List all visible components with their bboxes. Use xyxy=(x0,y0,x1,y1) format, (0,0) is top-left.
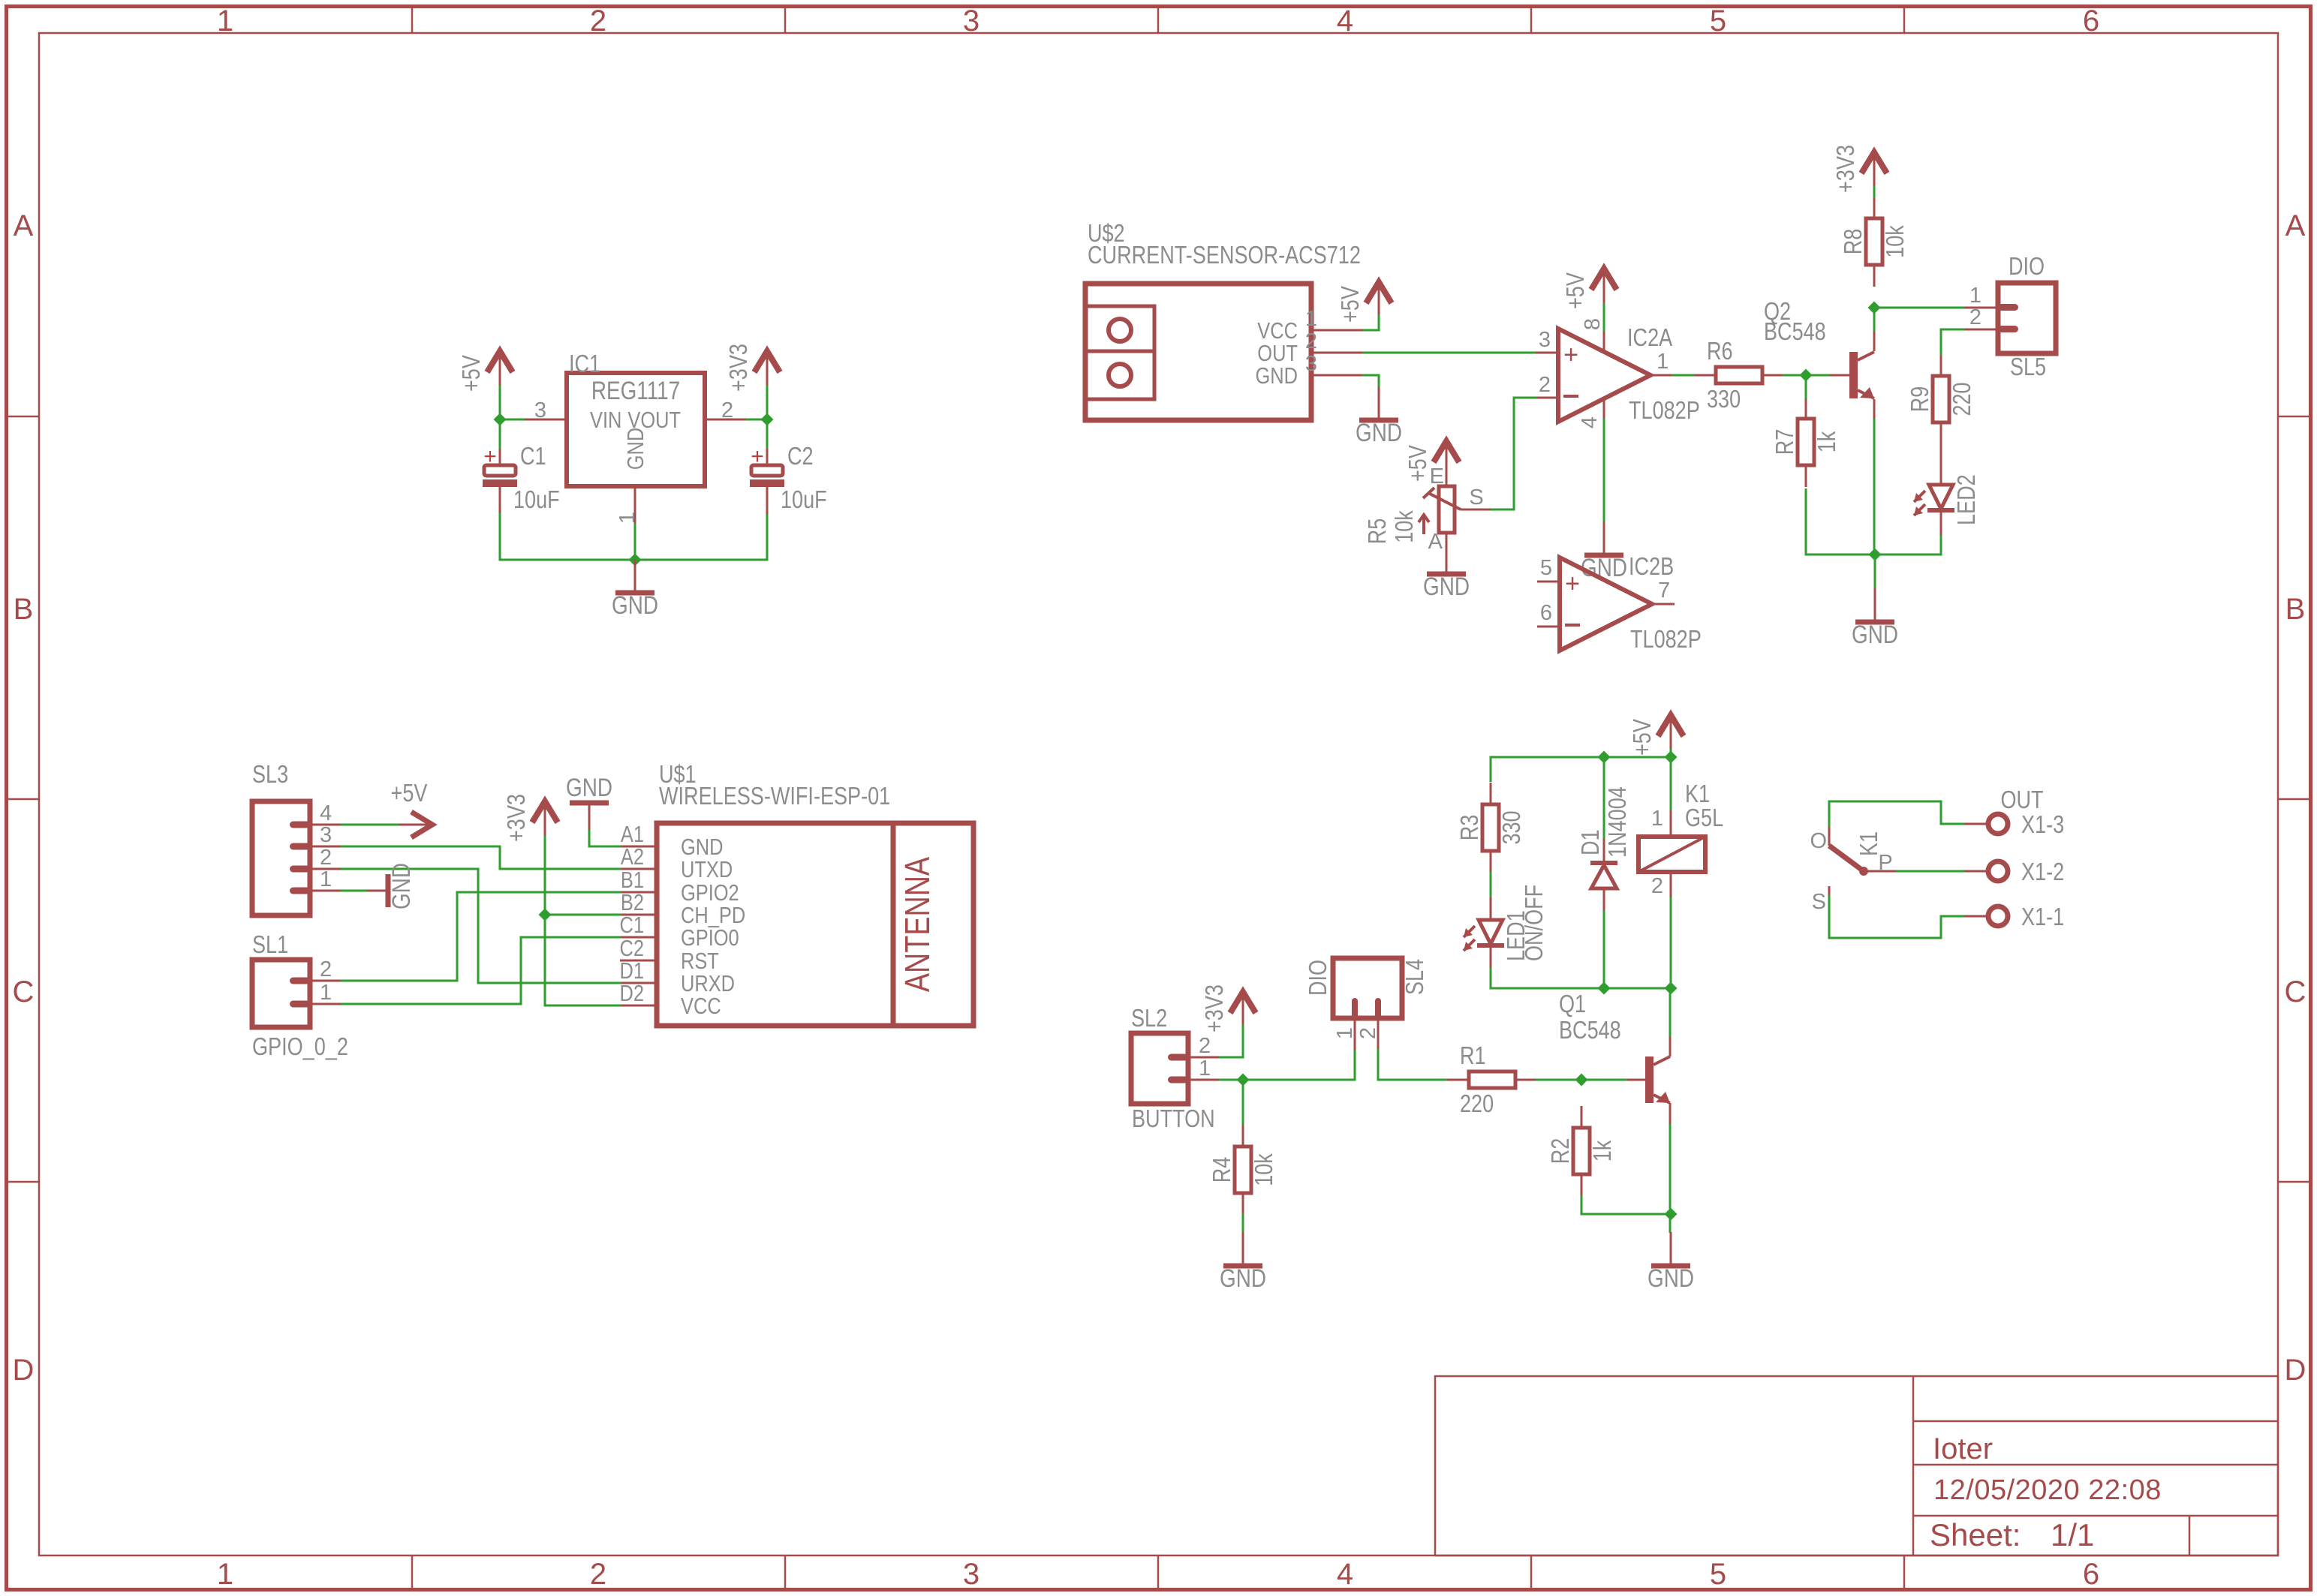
svg-text:S: S xyxy=(1812,890,1826,914)
svg-text:2: 2 xyxy=(590,5,606,38)
svg-text:BC548: BC548 xyxy=(1559,1016,1621,1044)
svg-text:1: 1 xyxy=(1199,1056,1211,1081)
svg-text:7: 7 xyxy=(1658,579,1670,603)
svg-text:+5V: +5V xyxy=(1404,445,1431,482)
svg-text:2: 2 xyxy=(721,398,733,422)
svg-text:R8: R8 xyxy=(1839,229,1867,255)
svg-text:GND: GND xyxy=(1423,573,1470,601)
svg-text:GND: GND xyxy=(1852,621,1898,649)
svg-text:3: 3 xyxy=(963,5,979,38)
svg-text:10uF: 10uF xyxy=(513,485,560,513)
svg-text:5: 5 xyxy=(1710,1558,1726,1591)
svg-text:WIRELESS-WIFI-ESP-01: WIRELESS-WIFI-ESP-01 xyxy=(659,782,890,810)
svg-text:1: 1 xyxy=(320,981,332,1005)
svg-text:R5: R5 xyxy=(1363,518,1391,545)
svg-text:D: D xyxy=(13,1354,35,1387)
svg-text:DIO: DIO xyxy=(1304,960,1332,996)
svg-text:SL1: SL1 xyxy=(252,930,288,958)
svg-text:X1-2: X1-2 xyxy=(2021,858,2064,885)
svg-text:1/1: 1/1 xyxy=(2051,1517,2094,1552)
svg-text:3: 3 xyxy=(320,823,332,847)
svg-text:3: 3 xyxy=(534,398,546,422)
svg-text:2: 2 xyxy=(320,846,332,870)
svg-text:GND: GND xyxy=(1220,1264,1266,1293)
svg-text:R3: R3 xyxy=(1455,815,1483,841)
svg-text:B: B xyxy=(2285,593,2306,626)
svg-text:1: 1 xyxy=(1333,1027,1357,1039)
svg-text:6: 6 xyxy=(1540,601,1552,625)
svg-text:1k: 1k xyxy=(1588,1140,1616,1162)
svg-text:R6: R6 xyxy=(1707,337,1733,365)
svg-text:GND: GND xyxy=(387,863,416,909)
svg-text:2: 2 xyxy=(1356,1027,1380,1039)
svg-text:6: 6 xyxy=(2083,1558,2099,1591)
svg-text:GPIO_0_2: GPIO_0_2 xyxy=(252,1032,348,1060)
svg-text:1: 1 xyxy=(1657,350,1669,374)
svg-text:+3V3: +3V3 xyxy=(1200,984,1228,1032)
svg-text:IC2B: IC2B xyxy=(1629,552,1674,580)
svg-text:+3V3: +3V3 xyxy=(724,344,752,392)
svg-text:5: 5 xyxy=(1710,5,1726,38)
svg-text:X1-3: X1-3 xyxy=(2021,810,2064,838)
svg-text:1: 1 xyxy=(217,1558,233,1591)
svg-text:D1: D1 xyxy=(1576,829,1604,855)
svg-text:GND: GND xyxy=(1256,362,1298,389)
svg-text:BUTTON: BUTTON xyxy=(1132,1105,1215,1132)
svg-text:UTXD: UTXD xyxy=(681,856,733,882)
svg-text:X1-1: X1-1 xyxy=(2021,903,2064,930)
svg-text:S: S xyxy=(1469,485,1483,509)
svg-text:B: B xyxy=(14,593,34,626)
svg-text:+: + xyxy=(1565,570,1580,598)
svg-text:DIO: DIO xyxy=(2009,252,2045,280)
svg-text:6: 6 xyxy=(2083,5,2099,38)
svg-text:D: D xyxy=(2285,1354,2306,1387)
svg-text:3: 3 xyxy=(1305,352,1317,376)
svg-text:1k: 1k xyxy=(1813,431,1840,452)
svg-text:R1: R1 xyxy=(1460,1041,1486,1069)
svg-text:+: + xyxy=(1563,341,1578,369)
svg-text:TL082P: TL082P xyxy=(1629,396,1700,424)
svg-text:O: O xyxy=(1810,829,1827,853)
svg-text:1: 1 xyxy=(1651,807,1663,831)
svg-text:8: 8 xyxy=(1581,318,1605,330)
svg-text:2: 2 xyxy=(1651,874,1663,898)
svg-text:LED2: LED2 xyxy=(1952,474,1980,525)
svg-text:Q1: Q1 xyxy=(1559,990,1586,1017)
svg-text:D2: D2 xyxy=(620,980,645,1006)
svg-text:A: A xyxy=(2285,209,2306,242)
svg-text:C2: C2 xyxy=(787,442,814,470)
svg-text:GND: GND xyxy=(1647,1264,1694,1293)
svg-text:+5V: +5V xyxy=(1561,272,1589,309)
svg-text:GND: GND xyxy=(1356,419,1402,447)
svg-text:C1: C1 xyxy=(620,912,645,938)
svg-text:GND: GND xyxy=(612,591,658,620)
svg-text:P: P xyxy=(1878,851,1892,875)
svg-text:IC1: IC1 xyxy=(569,350,600,377)
svg-text:OUT: OUT xyxy=(2000,786,2043,813)
svg-text:SL2: SL2 xyxy=(1131,1004,1167,1032)
svg-text:ON/OFF: ON/OFF xyxy=(1520,885,1548,961)
svg-text:10k: 10k xyxy=(1390,510,1418,543)
svg-text:1: 1 xyxy=(1969,284,1981,308)
svg-text:1: 1 xyxy=(217,5,233,38)
svg-text:CURRENT-SENSOR-ACS712: CURRENT-SENSOR-ACS712 xyxy=(1088,241,1361,269)
svg-text:+5V: +5V xyxy=(457,355,485,392)
svg-text:Ioter: Ioter xyxy=(1933,1432,1993,1465)
svg-text:G5L: G5L xyxy=(1685,804,1723,831)
svg-text:4: 4 xyxy=(1337,1558,1353,1591)
svg-text:R2: R2 xyxy=(1546,1138,1574,1165)
svg-text:VCC: VCC xyxy=(681,993,721,1019)
svg-text:1N4004: 1N4004 xyxy=(1603,786,1631,858)
svg-text:GND: GND xyxy=(566,774,612,802)
svg-text:4: 4 xyxy=(1578,416,1602,428)
svg-text:5: 5 xyxy=(1540,556,1552,580)
svg-text:Sheet:: Sheet: xyxy=(1930,1517,2021,1552)
svg-text:R7: R7 xyxy=(1771,429,1798,455)
svg-text:3: 3 xyxy=(1539,328,1551,352)
svg-text:2: 2 xyxy=(1305,329,1317,353)
svg-text:R4: R4 xyxy=(1208,1157,1235,1183)
svg-text:BC548: BC548 xyxy=(1764,317,1826,345)
svg-text:C: C xyxy=(2285,975,2306,1008)
svg-text:2: 2 xyxy=(1539,373,1551,397)
svg-text:220: 220 xyxy=(1948,382,1975,416)
svg-text:3: 3 xyxy=(963,1558,979,1591)
svg-text:12/05/2020 22:08: 12/05/2020 22:08 xyxy=(1933,1474,2162,1506)
svg-text:+5V: +5V xyxy=(1628,719,1656,756)
svg-text:4: 4 xyxy=(1337,5,1353,38)
svg-text:1: 1 xyxy=(320,867,332,891)
svg-text:IC2A: IC2A xyxy=(1627,323,1672,351)
svg-text:1: 1 xyxy=(615,512,639,524)
svg-text:4: 4 xyxy=(320,801,332,825)
svg-text:C1: C1 xyxy=(520,442,546,470)
svg-text:1: 1 xyxy=(1305,307,1317,331)
svg-text:A: A xyxy=(1428,530,1443,554)
svg-text:SL3: SL3 xyxy=(252,760,288,788)
svg-text:2: 2 xyxy=(1199,1034,1211,1058)
svg-text:2: 2 xyxy=(1969,305,1981,329)
svg-text:TL082P: TL082P xyxy=(1630,625,1702,653)
svg-text:2: 2 xyxy=(320,957,332,981)
svg-text:+5V: +5V xyxy=(391,779,428,807)
svg-text:10k: 10k xyxy=(1250,1153,1277,1186)
svg-text:GPIO0: GPIO0 xyxy=(681,924,739,951)
svg-text:SL4: SL4 xyxy=(1401,959,1428,995)
svg-text:10k: 10k xyxy=(1881,225,1909,258)
svg-text:C: C xyxy=(13,975,35,1008)
svg-text:10uF: 10uF xyxy=(781,485,827,513)
svg-text:2: 2 xyxy=(590,1558,606,1591)
svg-text:VIN: VIN xyxy=(590,407,621,433)
svg-text:330: 330 xyxy=(1707,385,1741,413)
svg-text:A2: A2 xyxy=(621,843,644,870)
svg-text:SL5: SL5 xyxy=(2010,353,2046,380)
svg-text:+3V3: +3V3 xyxy=(1831,145,1859,193)
svg-text:GND: GND xyxy=(622,428,648,470)
svg-text:330: 330 xyxy=(1497,810,1525,844)
svg-text:A: A xyxy=(14,209,34,242)
svg-text:+3V3: +3V3 xyxy=(502,794,530,842)
svg-text:REG1117: REG1117 xyxy=(591,377,680,405)
svg-text:220: 220 xyxy=(1460,1090,1494,1117)
svg-text:ANTENNA: ANTENNA xyxy=(898,857,937,992)
svg-text:R9: R9 xyxy=(1906,386,1933,413)
svg-text:+5V: +5V xyxy=(1336,286,1364,323)
